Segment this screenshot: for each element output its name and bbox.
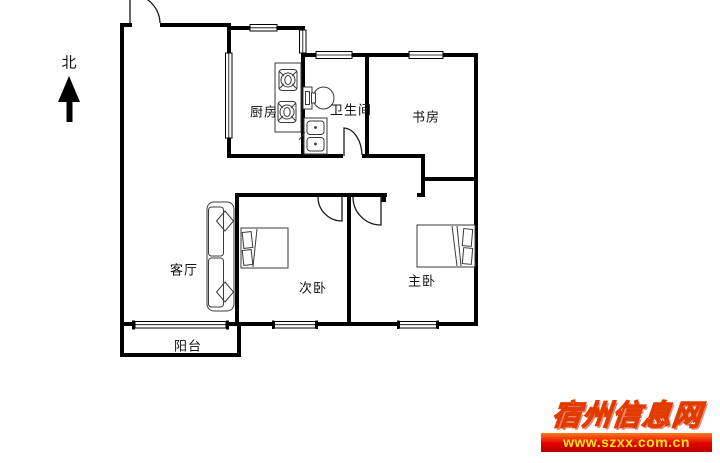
stove-icon (275, 63, 301, 132)
kitchen-right-window-icon (300, 30, 307, 53)
wall-hall-east-stub (421, 154, 425, 197)
wall-bedroom-divider (347, 193, 351, 326)
study-top-window-icon (409, 52, 443, 59)
wall-hall-top-west (227, 154, 343, 158)
sofa-icon (207, 202, 234, 311)
master-bedroom-window-icon (397, 321, 439, 330)
bed-icon (241, 228, 288, 268)
north-label: 北 (61, 52, 76, 73)
watermark-url: www.szxx.com.cn (563, 434, 690, 450)
bathroom-top-window-icon (316, 52, 352, 59)
wall-right-exterior (474, 53, 478, 326)
room-label-kitchen: 厨房 (250, 102, 278, 121)
balcony-sliding-door-icon (132, 321, 229, 330)
wall-study-bottom (425, 177, 478, 181)
floorplan-drawing (0, 0, 720, 463)
second-bedroom-window-icon (272, 321, 318, 330)
room-label-study: 书房 (412, 107, 440, 126)
kitchen-entry-slider-icon (226, 53, 233, 138)
kitchen-top-window-icon (250, 25, 277, 32)
second-bedroom-door-arc (318, 197, 342, 221)
entry-door-arc (130, 0, 160, 23)
wall-hall-top-east (362, 154, 421, 158)
room-label-bathroom: 卫生间 (330, 100, 372, 119)
wall-bedrooms-top-west (235, 193, 387, 197)
wall-left-exterior (120, 23, 124, 357)
north-arrow-icon (58, 76, 80, 122)
bathroom-door-arc (344, 128, 362, 156)
wall-balcony-right (237, 322, 241, 357)
wall-master-door-jamb (381, 193, 386, 202)
watermark-site-name: 宿州信息网 (539, 399, 714, 432)
floorplan-screenshot: 北 厨房 卫生间 书房 客厅 次卧 主卧 阳台 宿州信息网 www.szxx.c… (0, 0, 720, 463)
room-label-second-bedroom: 次卧 (299, 278, 327, 297)
room-label-master-bedroom: 主卧 (408, 271, 436, 290)
room-label-balcony: 阳台 (174, 336, 202, 355)
wall-second-bedroom-left (235, 193, 239, 326)
wall-bedrooms-top-east (417, 193, 425, 197)
wall-bedrooms-bottom (235, 322, 478, 326)
room-label-living-room: 客厅 (170, 260, 198, 279)
bed-icon (417, 225, 475, 267)
wall-top-left-a (120, 23, 132, 27)
wall-top-left-b (160, 23, 231, 27)
master-bedroom-door-arc (353, 197, 381, 225)
watermark-url-bar: www.szxx.com.cn (541, 433, 712, 452)
site-watermark: 宿州信息网 www.szxx.com.cn (541, 399, 717, 452)
